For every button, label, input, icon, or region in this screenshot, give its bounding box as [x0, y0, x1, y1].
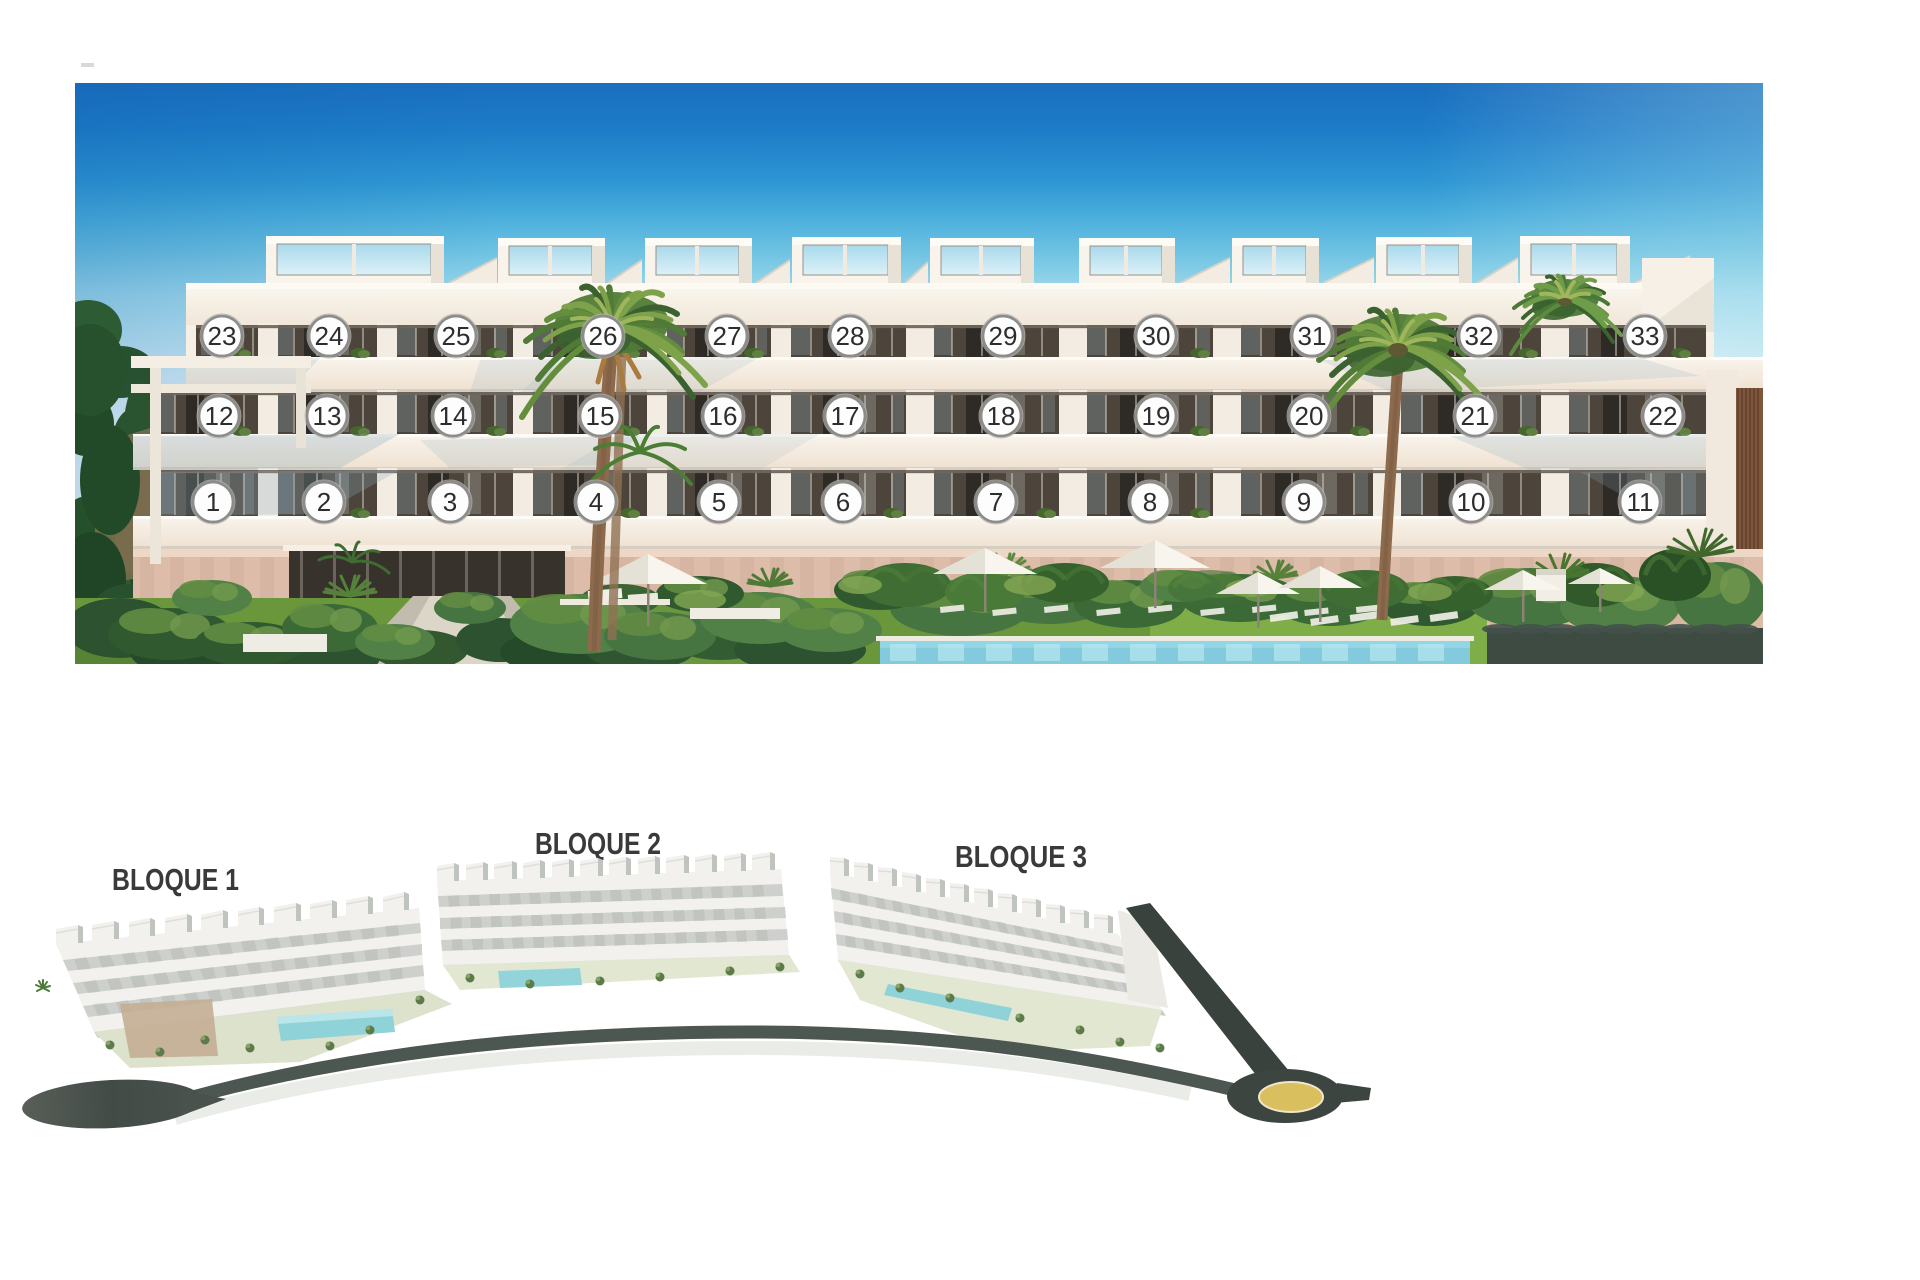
svg-text:24: 24	[315, 321, 344, 351]
svg-text:22: 22	[1649, 401, 1678, 431]
svg-text:BLOQUE 3: BLOQUE 3	[955, 839, 1087, 874]
svg-text:33: 33	[1631, 321, 1660, 351]
svg-text:8: 8	[1143, 487, 1157, 517]
svg-text:32: 32	[1465, 321, 1494, 351]
svg-text:11: 11	[1627, 487, 1654, 517]
svg-text:16: 16	[709, 401, 738, 431]
svg-text:31: 31	[1298, 321, 1327, 351]
svg-text:21: 21	[1461, 401, 1490, 431]
svg-text:14: 14	[439, 401, 468, 431]
svg-text:3: 3	[443, 487, 457, 517]
svg-text:29: 29	[989, 321, 1018, 351]
svg-text:BLOQUE 2: BLOQUE 2	[535, 826, 661, 861]
svg-text:25: 25	[442, 321, 471, 351]
svg-text:10: 10	[1457, 487, 1486, 517]
svg-text:2: 2	[317, 487, 331, 517]
svg-text:20: 20	[1295, 401, 1324, 431]
svg-text:9: 9	[1297, 487, 1311, 517]
svg-text:17: 17	[831, 401, 860, 431]
svg-text:1: 1	[206, 487, 220, 517]
svg-text:30: 30	[1142, 321, 1171, 351]
svg-text:18: 18	[987, 401, 1016, 431]
svg-text:23: 23	[208, 321, 237, 351]
svg-text:6: 6	[836, 487, 850, 517]
svg-text:28: 28	[836, 321, 865, 351]
svg-text:7: 7	[989, 487, 1003, 517]
svg-text:5: 5	[712, 487, 726, 517]
svg-text:4: 4	[589, 487, 603, 517]
svg-text:12: 12	[205, 401, 234, 431]
svg-text:19: 19	[1142, 401, 1171, 431]
svg-text:13: 13	[313, 401, 342, 431]
svg-text:BLOQUE 1: BLOQUE 1	[112, 862, 239, 897]
svg-text:15: 15	[586, 401, 615, 431]
svg-text:27: 27	[713, 321, 742, 351]
svg-text:26: 26	[589, 321, 618, 351]
